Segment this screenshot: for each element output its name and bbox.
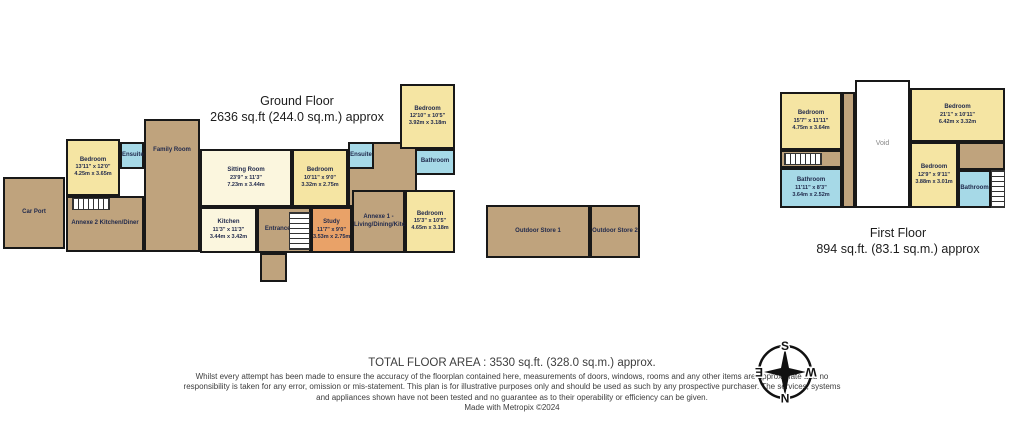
- room-imperial: 21'1" x 10'11": [912, 112, 1003, 119]
- room-metric: 3.44m x 3.42m: [202, 234, 255, 241]
- room-study: Study11'7" x 9'0"3.53m x 2.75m: [311, 207, 352, 253]
- room-label: Bedroom12'10" x 10'5"3.92m x 3.18m: [402, 106, 453, 127]
- room-bedroom: Bedroom12'9" x 9'11"3.88m x 3.01m: [910, 142, 958, 208]
- room-ensuite: Ensuite: [120, 142, 144, 169]
- ground-floor-area-label: 2636 sq.ft (244.0 sq.m.) approx: [172, 109, 422, 125]
- room-car-port: Car Port: [3, 177, 65, 249]
- room-metric: 6.42m x 3.32m: [912, 119, 1003, 126]
- room-label: Bathroom: [960, 185, 989, 193]
- room-name: Family Room: [146, 147, 198, 155]
- room-label: Annexe 1 -Living/Dining/Kitchenette: [354, 214, 403, 229]
- room-imperial: 15'3" x 10'5": [407, 218, 453, 225]
- room-label: Ensuite: [122, 152, 142, 160]
- floorplan-canvas: Ground Floor 2636 sq.ft (244.0 sq.m.) ap…: [0, 0, 1024, 431]
- stairs: [72, 198, 110, 210]
- first-floor-title-label: First Floor: [773, 225, 1023, 241]
- compass-letter-east: E: [755, 365, 763, 379]
- room-imperial: 11'3" x 11'3": [202, 227, 255, 234]
- room-name2: Living/Dining/Kitchenette: [354, 222, 403, 230]
- room-name: Outdoor Store 1: [488, 228, 588, 236]
- room-bedroom: Bedroom21'1" x 10'11"6.42m x 3.32m: [910, 88, 1005, 142]
- room-outdoor-store-2: Outdoor Store 2: [590, 205, 640, 258]
- room-bedroom: Bedroom15'7" x 11'11"4.75m x 3.64m: [780, 92, 842, 150]
- compass-rose: S N E W: [743, 332, 827, 418]
- room-bedroom: Bedroom12'10" x 10'5"3.92m x 3.18m: [400, 84, 455, 149]
- room-sitting-room: Sitting Room23'9" x 11'3"7.23m x 3.44m: [200, 149, 292, 207]
- room-label: Ensuite: [350, 152, 372, 160]
- room-metric: 3.88m x 3.01m: [912, 179, 956, 186]
- room-name: Bathroom: [417, 158, 453, 166]
- room-area: [260, 253, 287, 282]
- room-name: Car Port: [5, 209, 63, 217]
- room-name: Ensuite: [122, 152, 142, 160]
- room-label: Kitchen11'3" x 11'3"3.44m x 3.42m: [202, 219, 255, 240]
- room-area: [842, 92, 855, 208]
- room-label: Outdoor Store 2: [592, 228, 638, 236]
- room-label: Family Room: [146, 121, 198, 155]
- room-area: [958, 142, 1005, 170]
- compass-letter-north: N: [781, 391, 790, 405]
- room-imperial: 13'11" x 12'0": [68, 164, 118, 171]
- room-name: Bathroom: [960, 185, 989, 193]
- room-imperial: 23'9" x 11'3": [202, 175, 290, 182]
- room-imperial: 15'7" x 11'11": [782, 118, 840, 125]
- room-annexe-1: Annexe 1 -Living/Dining/Kitchenette: [352, 190, 405, 253]
- stairs: [289, 212, 310, 250]
- stairs: [784, 153, 822, 165]
- room-label: Bedroom13'11" x 12'0"4.25m x 3.65m: [68, 157, 118, 178]
- room-imperial: 12'10" x 10'5": [402, 113, 453, 120]
- compass-letter-west: W: [805, 365, 817, 379]
- room-label: Bathroom: [417, 158, 453, 166]
- first-floor-area-label: 894 sq.ft. (83.1 sq.m.) approx: [773, 241, 1023, 257]
- room-name: Bedroom: [782, 110, 840, 118]
- room-label: Sitting Room23'9" x 11'3"7.23m x 3.44m: [202, 167, 290, 188]
- room-name: Annexe 2 Kitchen/Diner: [68, 220, 142, 228]
- room-outdoor-store-1: Outdoor Store 1: [486, 205, 590, 258]
- room-name: Outdoor Store 2: [592, 228, 638, 236]
- room-label: Outdoor Store 1: [488, 228, 588, 236]
- compass-letter-south: S: [781, 339, 789, 353]
- room-label: Study11'7" x 9'0"3.53m x 2.75m: [313, 219, 350, 240]
- room-label: Annexe 2 Kitchen/Diner: [68, 220, 142, 228]
- room-name: Void: [857, 140, 908, 149]
- room-imperial: 10'11" x 9'0": [294, 175, 346, 182]
- room-label: Void: [857, 140, 908, 149]
- room-metric: 7.23m x 3.44m: [202, 182, 290, 189]
- room-name: Annexe 1 -: [354, 214, 403, 222]
- room-name: Kitchen: [202, 219, 255, 227]
- room-metric: 3.64m x 2.52m: [782, 192, 840, 199]
- room-imperial: 12'9" x 9'11": [912, 172, 956, 179]
- room-name: Bedroom: [68, 157, 118, 165]
- room-bedroom: Bedroom13'11" x 12'0"4.25m x 3.65m: [66, 139, 120, 196]
- room-imperial: 11'11" x 8'3": [782, 185, 840, 192]
- room-name: Bathroom: [782, 177, 840, 185]
- room-bedroom: Bedroom15'3" x 10'5"4.65m x 3.18m: [405, 190, 455, 253]
- room-kitchen: Kitchen11'3" x 11'3"3.44m x 3.42m: [200, 207, 257, 253]
- room-label: Car Port: [5, 209, 63, 217]
- room-name: Bedroom: [407, 211, 453, 219]
- room-label: Bathroom11'11" x 8'3"3.64m x 2.52m: [782, 177, 840, 198]
- room-name: Bedroom: [912, 164, 956, 172]
- room-metric: 3.92m x 3.18m: [402, 120, 453, 127]
- room-name: Bedroom: [912, 104, 1003, 112]
- compass-star: [764, 348, 806, 396]
- room-name: Sitting Room: [202, 167, 290, 175]
- room-bathroom: Bathroom11'11" x 8'3"3.64m x 2.52m: [780, 168, 842, 208]
- room-name: Ensuite: [350, 152, 372, 160]
- room-label: Bedroom10'11" x 9'0"3.32m x 2.75m: [294, 167, 346, 188]
- room-family-room: Family Room: [144, 119, 200, 252]
- room-bedroom: Bedroom10'11" x 9'0"3.32m x 2.75m: [292, 149, 348, 207]
- room-name: Study: [313, 219, 350, 227]
- room-metric: 4.65m x 3.18m: [407, 225, 453, 232]
- room-bathroom: Bathroom: [415, 149, 455, 175]
- room-imperial: 11'7" x 9'0": [313, 227, 350, 234]
- room-metric: 3.32m x 2.75m: [294, 182, 346, 189]
- room-label: Bedroom15'3" x 10'5"4.65m x 3.18m: [407, 211, 453, 232]
- room-label: Bedroom15'7" x 11'11"4.75m x 3.64m: [782, 110, 840, 131]
- room-void: Void: [855, 80, 910, 208]
- ground-floor-title-label: Ground Floor: [172, 93, 422, 109]
- room-ensuite: Ensuite: [348, 142, 374, 169]
- ground-floor-title: Ground Floor 2636 sq.ft (244.0 sq.m.) ap…: [172, 93, 422, 126]
- room-label: Bedroom21'1" x 10'11"6.42m x 3.32m: [912, 104, 1003, 125]
- room-bathroom: Bathroom: [958, 170, 991, 208]
- room-label: Bedroom12'9" x 9'11"3.88m x 3.01m: [912, 164, 956, 185]
- room-metric: 4.75m x 3.64m: [782, 125, 840, 132]
- room-name: Bedroom: [294, 167, 346, 175]
- room-metric: 4.25m x 3.65m: [68, 171, 118, 178]
- room-name: Bedroom: [402, 106, 453, 114]
- stairs: [991, 170, 1005, 208]
- room-metric: 3.53m x 2.75m: [313, 234, 350, 241]
- first-floor-title: First Floor 894 sq.ft. (83.1 sq.m.) appr…: [773, 225, 1023, 258]
